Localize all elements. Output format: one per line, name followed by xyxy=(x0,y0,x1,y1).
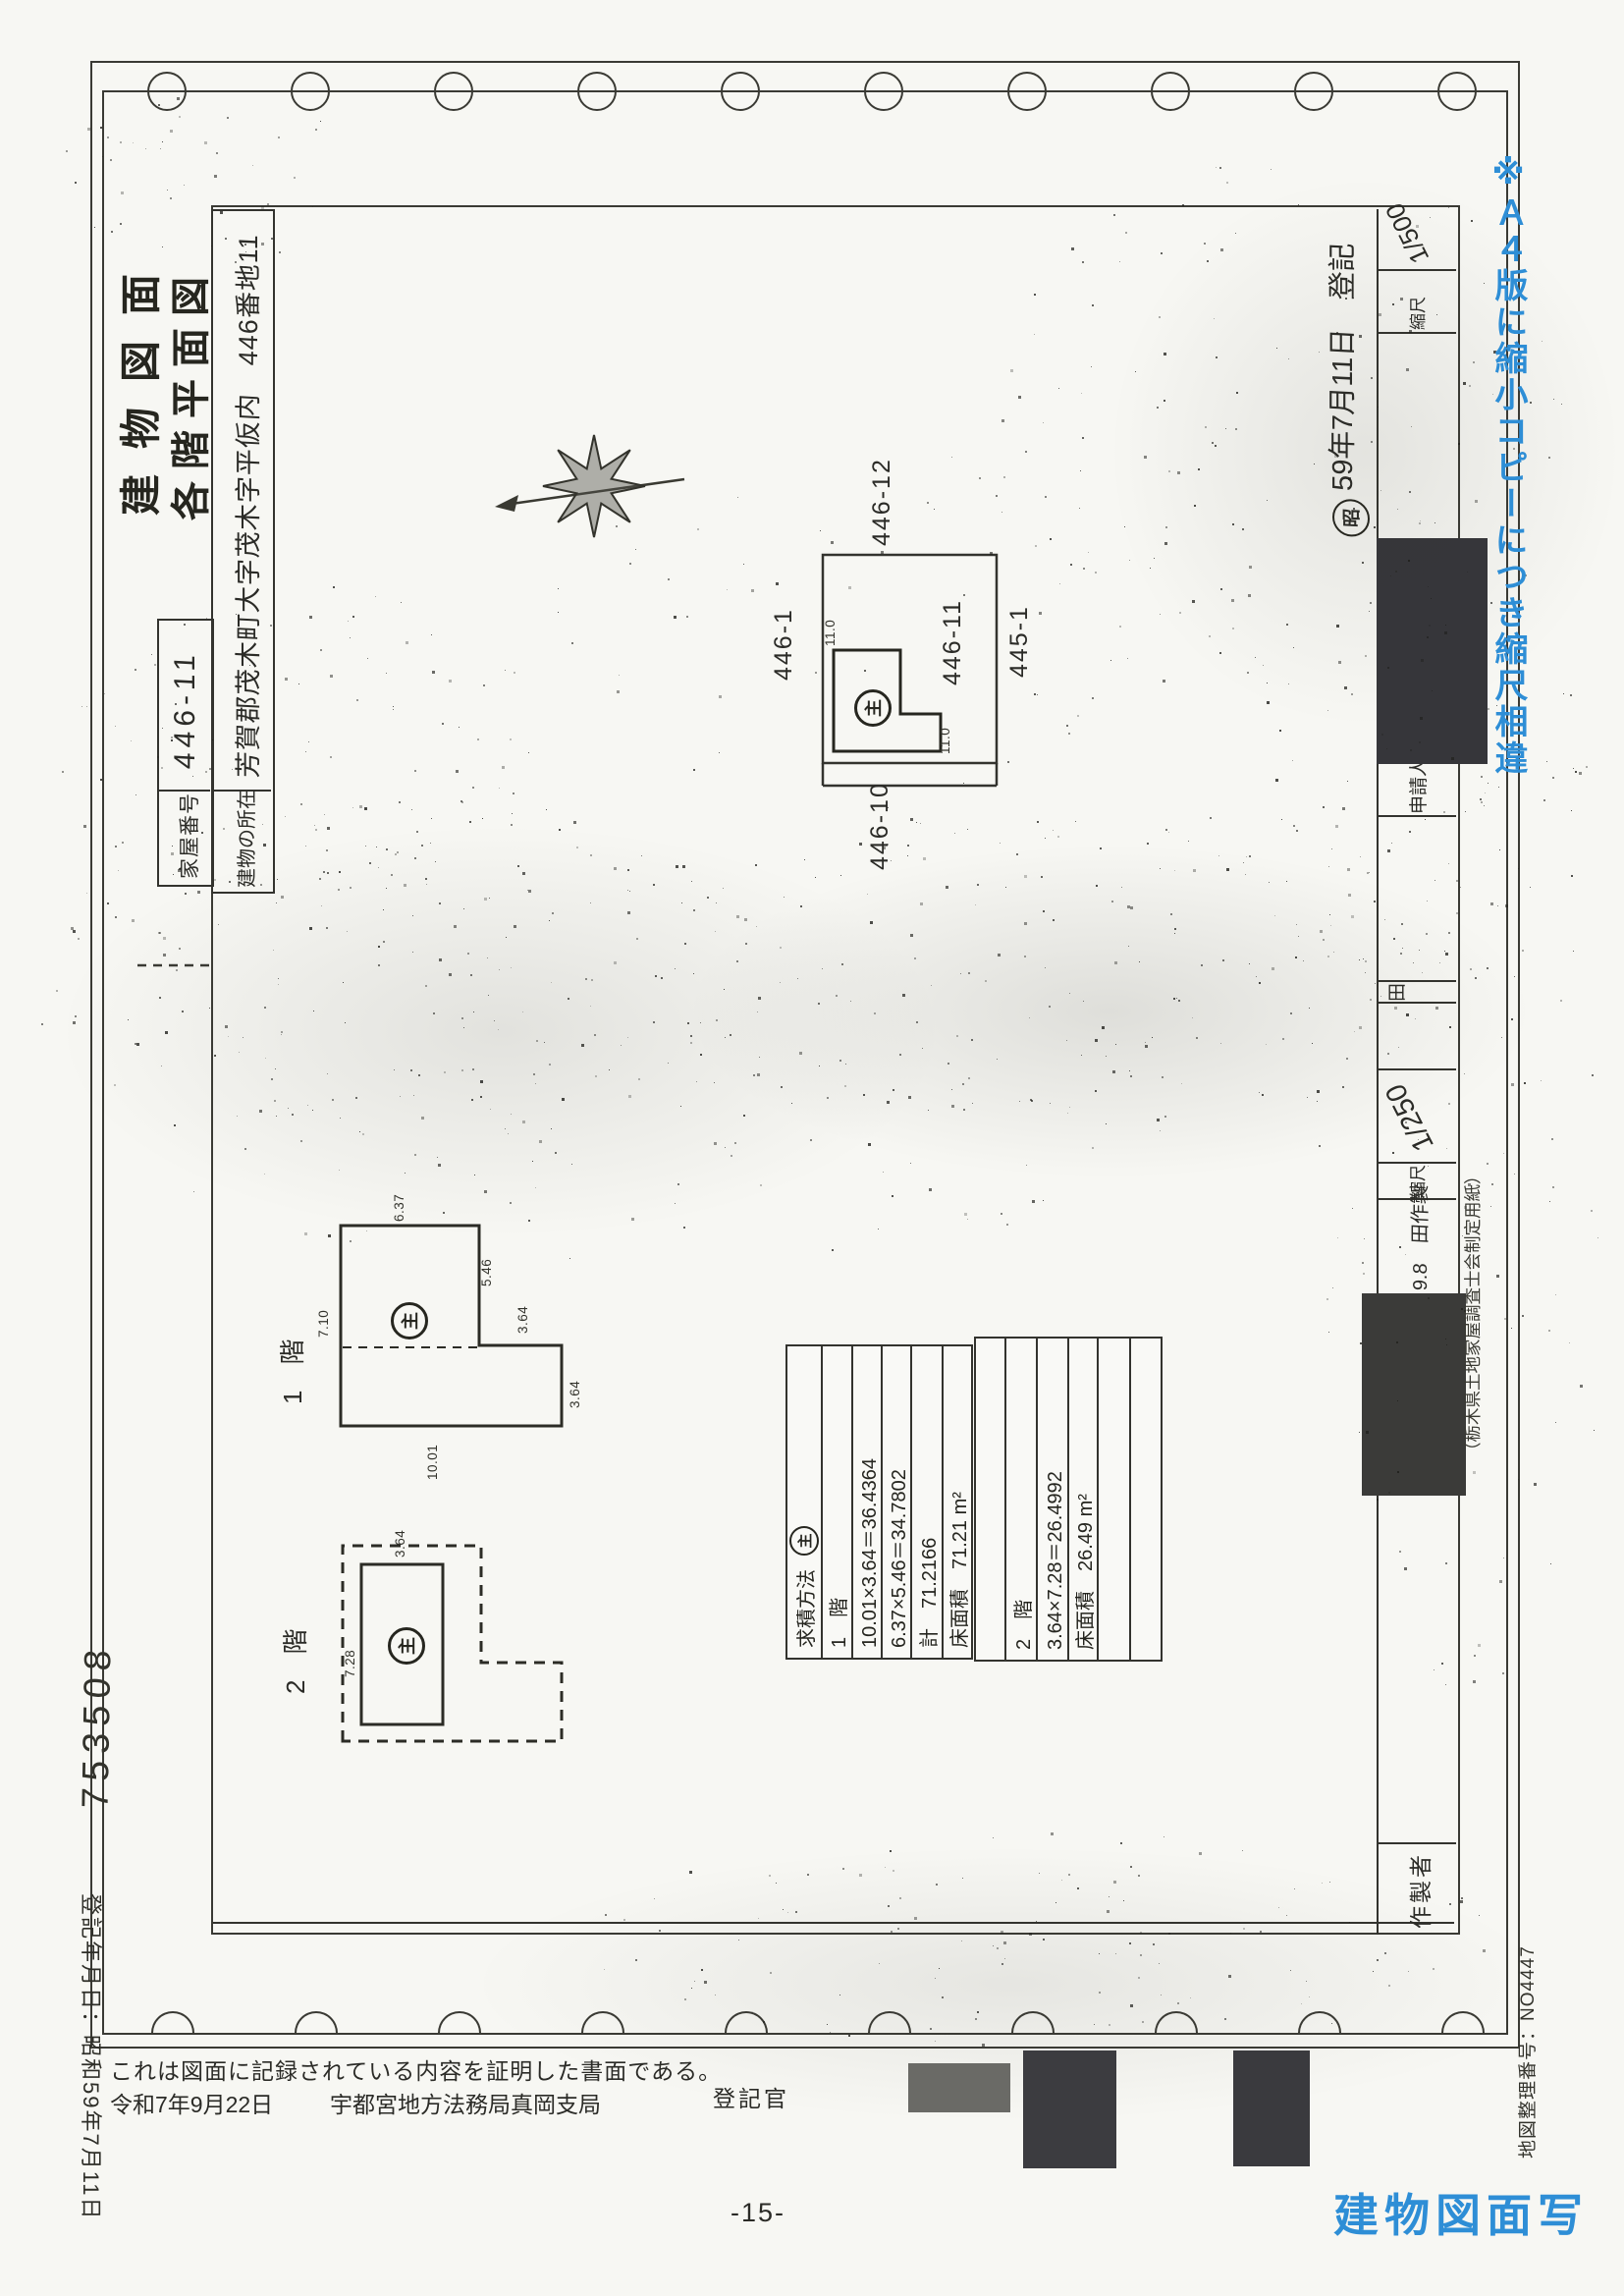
scanned-building-drawing-page: { "titles": { "main": "建物図面", "sub": "各階… xyxy=(0,0,1624,2296)
smudge xyxy=(1110,177,1620,727)
certification-overlay: 登記年月日：昭和59年7月11日 これは図面に記録されている内容を証明した書面で… xyxy=(0,0,1624,2296)
copy-stamp: 建物図面写 xyxy=(1333,2180,1589,2245)
certification-statement: これは図面に記録されている内容を証明した書面である。 xyxy=(110,2052,722,2086)
registrar-label: 登記官 xyxy=(713,2080,789,2113)
page-number: -15- xyxy=(731,2198,785,2228)
redaction-registrar-stamp xyxy=(908,2063,1010,2112)
scale-difference-note: ※Ａ４版に縮小コピーにつき縮尺相違 xyxy=(1485,153,1533,777)
redaction-registrar-stamp xyxy=(1023,2050,1116,2168)
registration-date-note: 登記年月日：昭和59年7月11日 xyxy=(77,1893,108,2267)
certification-office: 宇都宮地方法務局真岡支局 xyxy=(330,2086,601,2119)
certification-date: 令和7年9月22日 xyxy=(110,2086,273,2119)
redaction-registrar-stamp xyxy=(1233,2050,1310,2166)
smudge xyxy=(687,845,1532,1178)
smudge xyxy=(59,825,943,1237)
